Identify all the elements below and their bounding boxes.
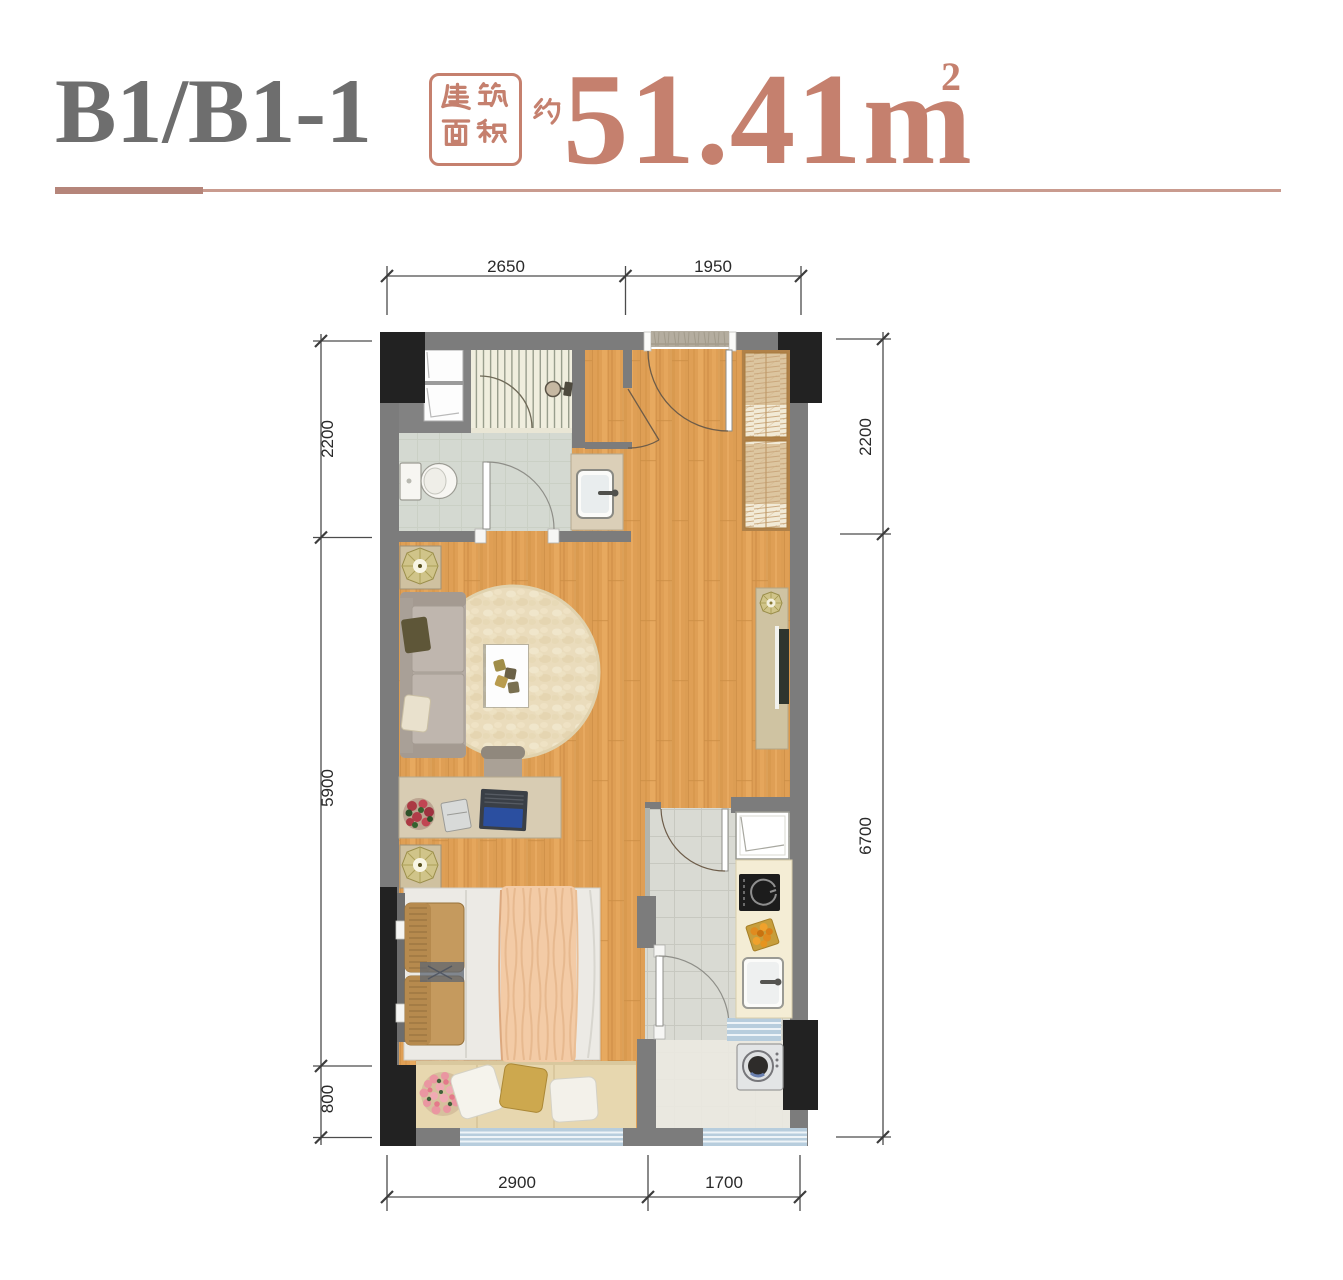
svg-text:1700: 1700 (705, 1173, 743, 1192)
svg-text:2650: 2650 (487, 257, 525, 276)
svg-text:1950: 1950 (694, 257, 732, 276)
svg-text:6700: 6700 (856, 817, 875, 855)
svg-text:5900: 5900 (318, 769, 337, 807)
svg-text:2200: 2200 (856, 418, 875, 456)
svg-text:2900: 2900 (498, 1173, 536, 1192)
svg-text:800: 800 (318, 1085, 337, 1113)
svg-text:2200: 2200 (318, 420, 337, 458)
